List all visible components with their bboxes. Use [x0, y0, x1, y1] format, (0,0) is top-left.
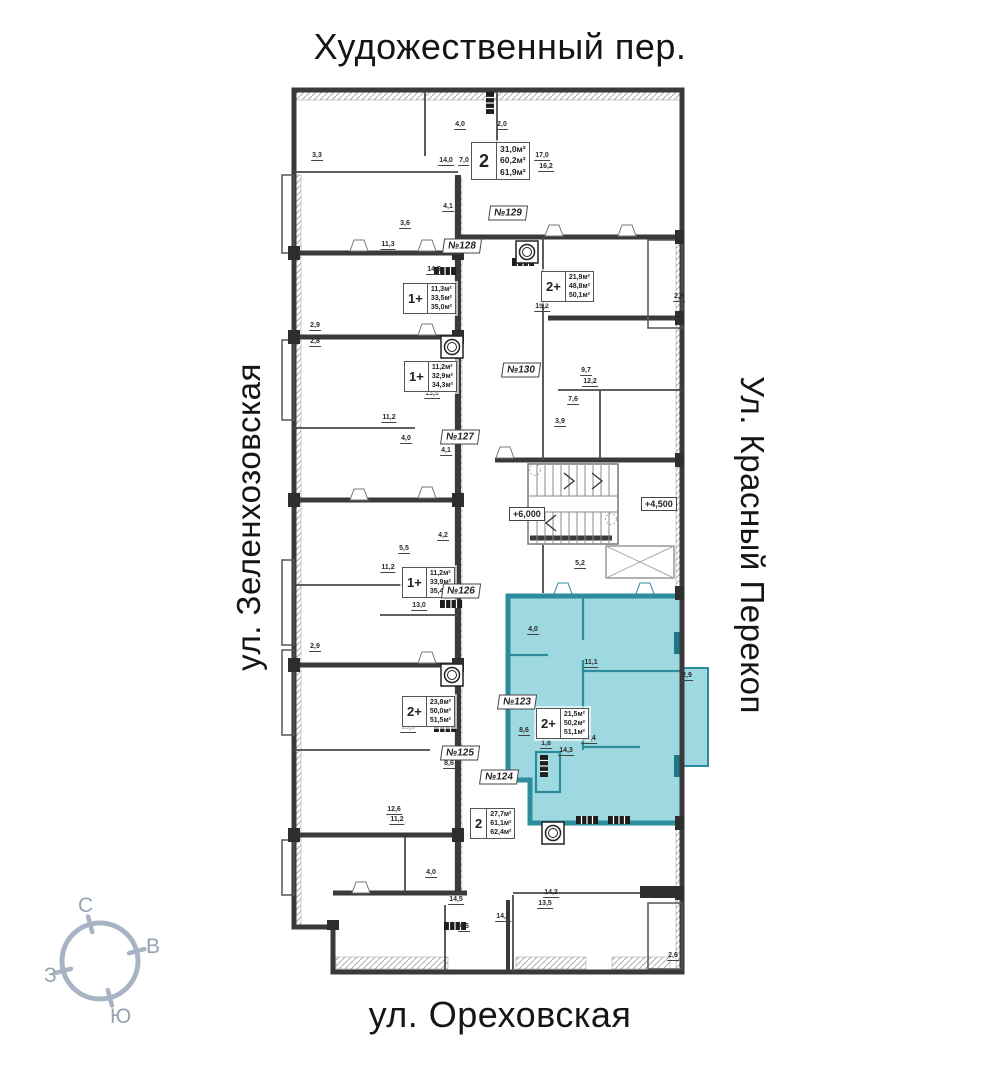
compass-south-label: Ю [110, 1005, 131, 1028]
vent-icon [441, 336, 463, 358]
radiator-icon [444, 922, 466, 930]
door-icon [418, 652, 436, 663]
highlighted-balcony [682, 668, 708, 766]
compass-west-label: З [44, 964, 57, 987]
interior-walls-thin [294, 92, 682, 972]
vent-icon [441, 664, 463, 686]
radiator-icon [434, 267, 456, 275]
door-icon [418, 324, 436, 335]
radiator-icon [486, 92, 494, 114]
compass-ring [62, 923, 138, 999]
compass-north-label: С [78, 896, 93, 917]
door-icon [554, 583, 572, 594]
balconies [282, 175, 682, 969]
compass-ticks [56, 917, 145, 1006]
radiator-icon [440, 600, 462, 608]
highlighted-apartment-123[interactable] [508, 596, 708, 823]
outer-walls [294, 90, 682, 972]
door-icon [496, 447, 514, 458]
door-icon [352, 882, 370, 893]
radiator-icon [576, 816, 598, 824]
door-icon [418, 487, 436, 498]
door-icon [350, 240, 368, 251]
interior-walls-thick [294, 175, 682, 972]
door-icon [545, 225, 563, 236]
door-icon [350, 489, 368, 500]
radiator-icon [540, 755, 548, 777]
door-icon [618, 225, 636, 236]
door-icon [418, 240, 436, 251]
compass: С В З Ю [40, 896, 220, 1046]
stairs [528, 464, 618, 544]
wall-hatching [295, 92, 683, 970]
elevator [606, 546, 674, 578]
stairs-arrow-down [546, 515, 556, 531]
radiator-icon [434, 724, 456, 732]
radiator-icon [608, 816, 630, 824]
vent-icon [542, 822, 564, 844]
stairs-arrow-up [564, 473, 602, 489]
door-icon [636, 583, 654, 594]
compass-east-label: В [146, 935, 160, 958]
vent-icon [516, 241, 538, 263]
